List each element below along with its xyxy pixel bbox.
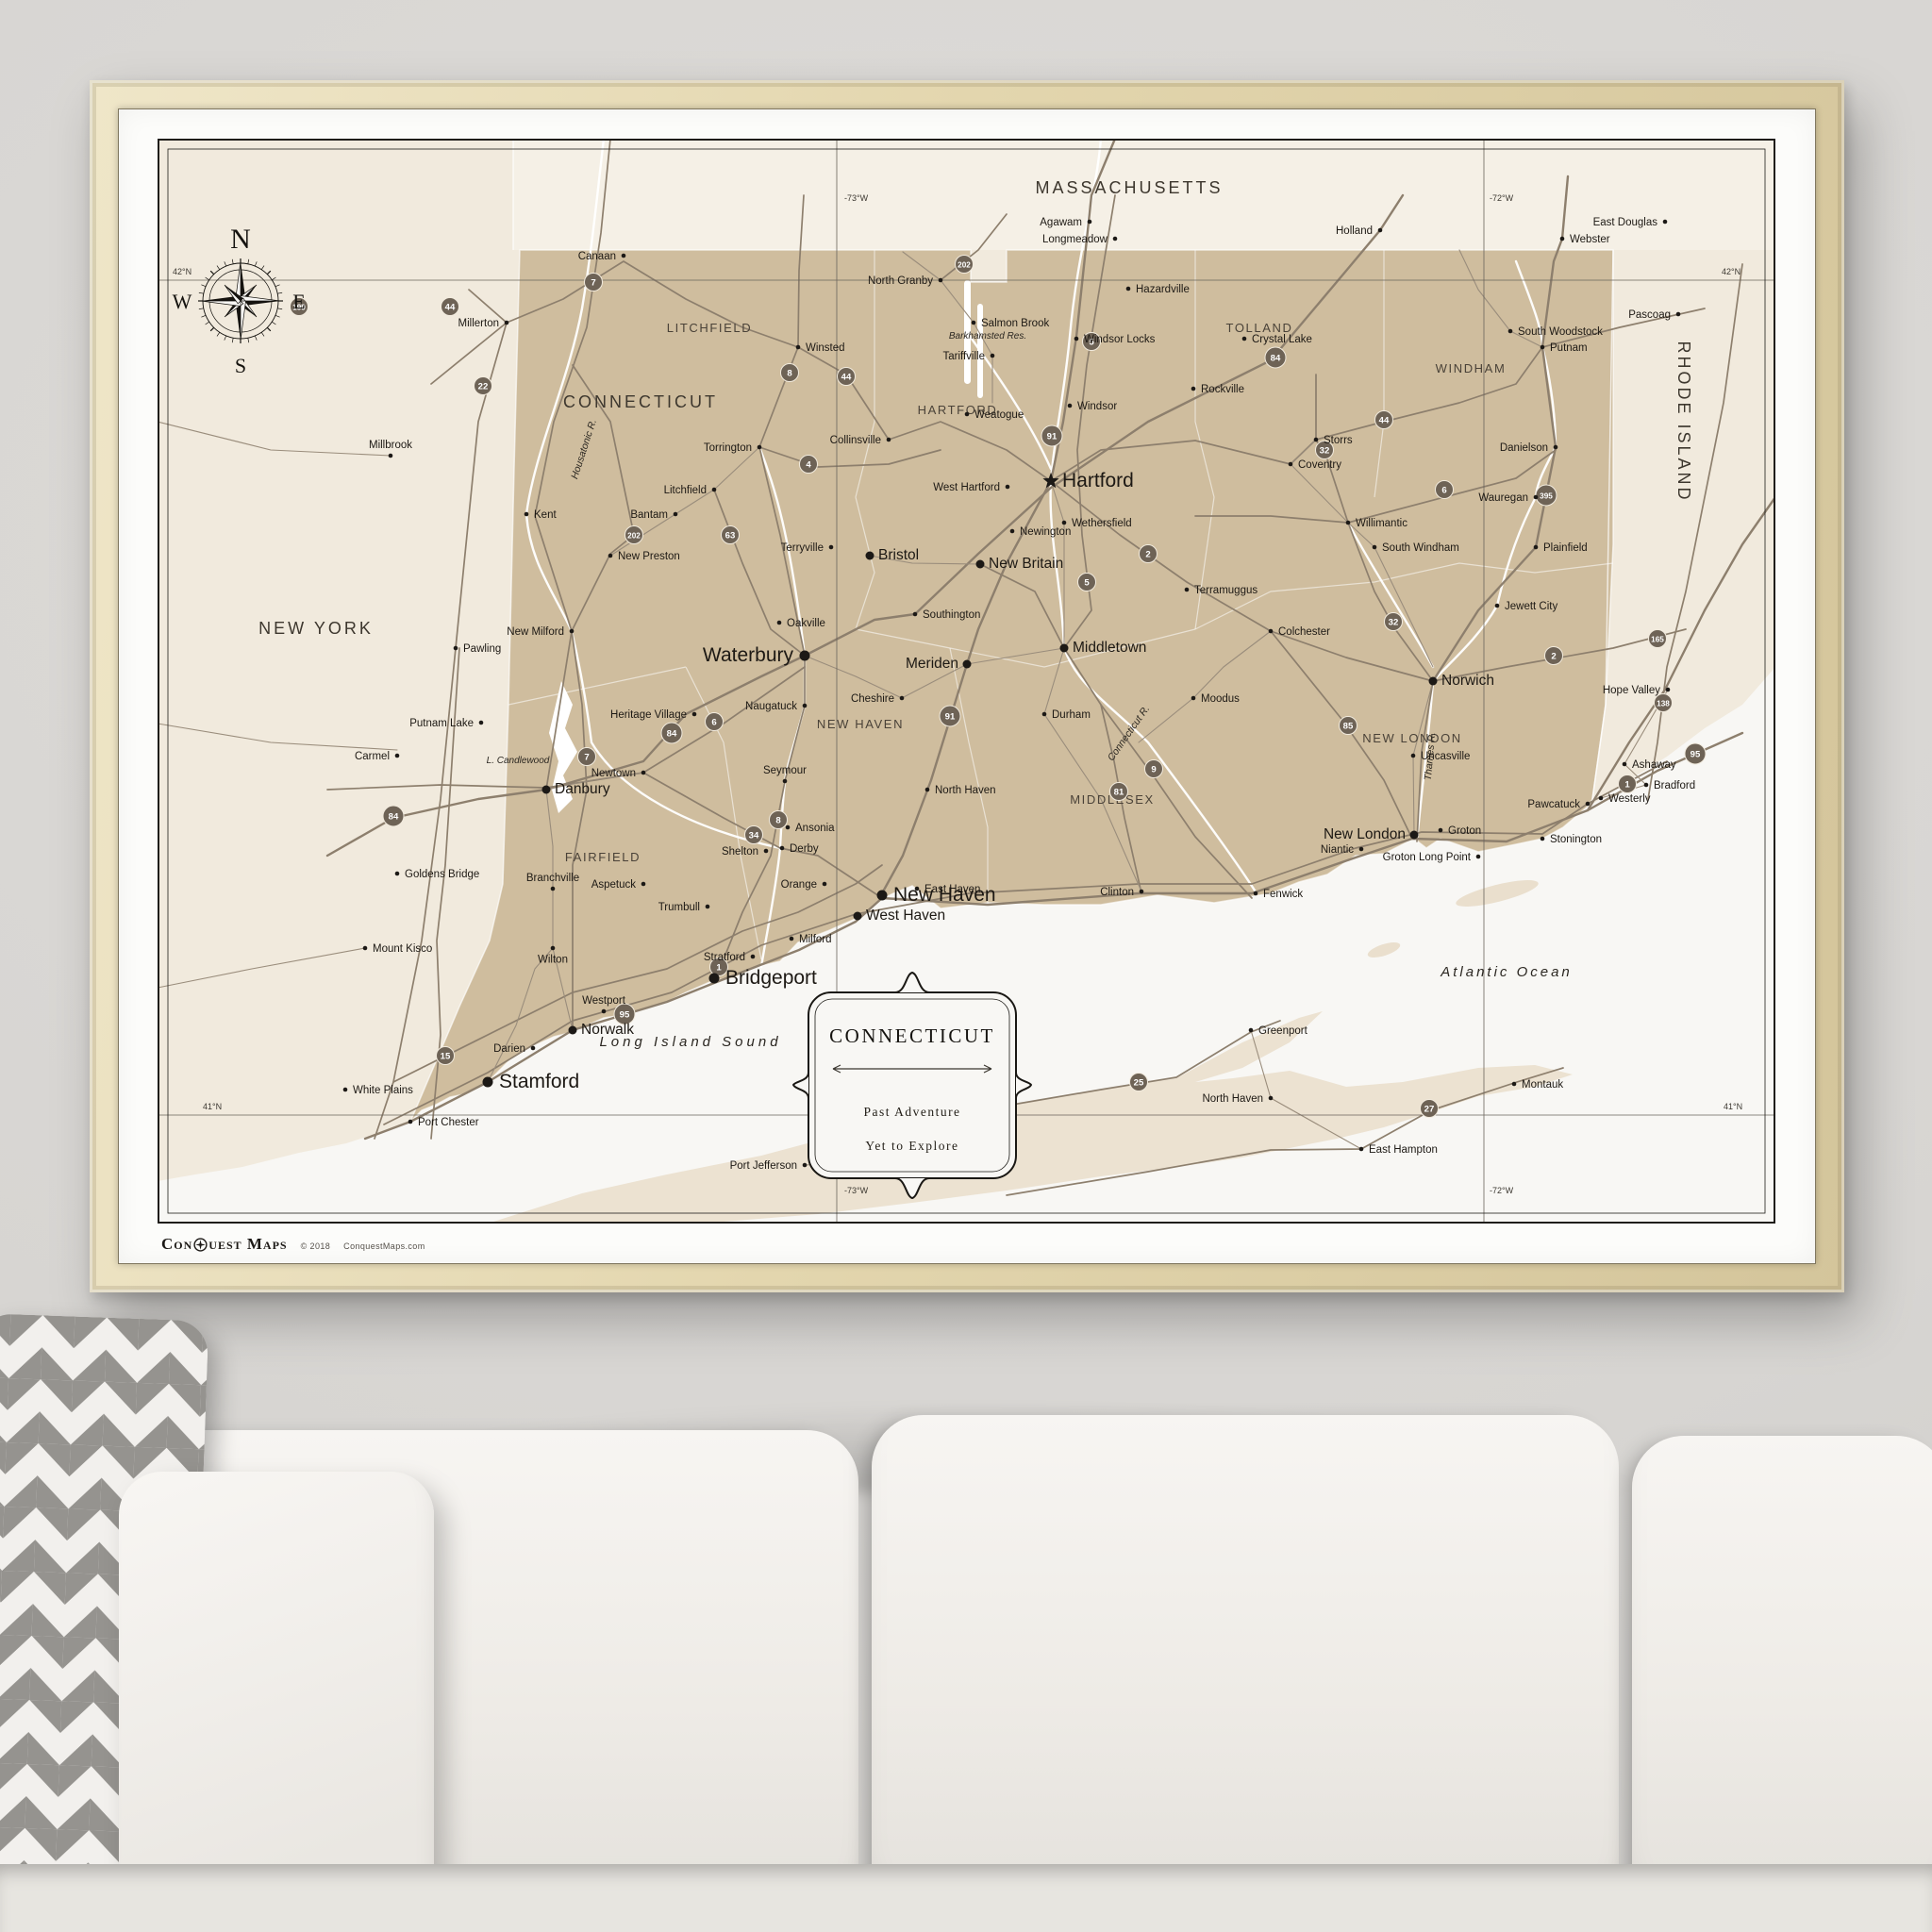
place-label: Holland bbox=[1336, 225, 1373, 237]
living-room-scene: 42°N 42°N 41°N 41°N -73°W -73°W -72°W -7… bbox=[0, 0, 1932, 1932]
place-dot bbox=[1560, 237, 1565, 241]
place-dot bbox=[531, 1046, 536, 1051]
place-dot bbox=[1378, 228, 1383, 233]
place-label: Pawcatuck bbox=[1527, 799, 1580, 810]
place-label: Stamford bbox=[499, 1071, 579, 1092]
route-shield-number: 81 bbox=[1114, 787, 1124, 797]
state-label: RHODE ISLAND bbox=[1674, 341, 1693, 502]
place-label: Putnam Lake bbox=[409, 718, 474, 729]
route-shield: 2 bbox=[1140, 545, 1158, 563]
place-dot bbox=[1191, 696, 1196, 701]
place-dot bbox=[1512, 1082, 1517, 1087]
place-dot bbox=[569, 1026, 577, 1035]
place-label: Windsor bbox=[1077, 401, 1117, 412]
place: West Haven bbox=[854, 908, 946, 924]
compass-letter-north: N bbox=[230, 224, 251, 255]
lat-label-bottom-left: 41°N bbox=[203, 1102, 222, 1111]
place-label: Heritage Village bbox=[610, 709, 687, 721]
route-shield: 91 bbox=[1041, 425, 1062, 446]
place-dot bbox=[1042, 712, 1047, 717]
place-label: West Haven bbox=[866, 908, 945, 924]
place: East Douglas bbox=[1593, 217, 1668, 228]
map-canvas: 42°N 42°N 41°N 41°N -73°W -73°W -72°W -7… bbox=[118, 108, 1816, 1264]
route-shield-number: 5 bbox=[1084, 577, 1090, 588]
place: New Preston bbox=[608, 551, 680, 562]
place-label: Norwich bbox=[1441, 673, 1494, 689]
place-dot bbox=[1541, 345, 1545, 350]
water-label: L. Candlewood bbox=[487, 756, 550, 766]
county-label: FAIRFIELD bbox=[565, 850, 641, 864]
place-dot bbox=[641, 771, 646, 775]
framed-map-frame: 42°N 42°N 41°N 41°N -73°W -73°W -72°W -7… bbox=[90, 80, 1844, 1292]
place-dot bbox=[777, 621, 782, 625]
route-shield: 138 bbox=[1655, 694, 1673, 712]
place-label: Bridgeport bbox=[725, 967, 817, 989]
place-dot bbox=[570, 629, 575, 634]
route-shield-number: 32 bbox=[1389, 617, 1399, 627]
place-dot bbox=[674, 512, 678, 517]
place-label: Carmel bbox=[355, 751, 390, 762]
route-shield-number: 202 bbox=[627, 531, 641, 540]
place-dot bbox=[363, 946, 368, 951]
legend-title: CONNECTICUT bbox=[829, 1024, 995, 1047]
route-shield-number: 2 bbox=[1145, 549, 1150, 559]
place-label: West Hartford bbox=[933, 482, 1000, 493]
place-dot bbox=[1666, 688, 1671, 692]
place: South Woodstock bbox=[1508, 326, 1603, 338]
place-dot bbox=[712, 488, 717, 492]
place-label: Westerly bbox=[1608, 793, 1651, 805]
place-dot bbox=[758, 445, 762, 450]
place-dot bbox=[389, 454, 393, 458]
place-dot bbox=[1242, 337, 1247, 341]
place-label: Terryville bbox=[781, 542, 824, 554]
place-label: Uncasville bbox=[1421, 751, 1470, 762]
place-label: Hazardville bbox=[1136, 284, 1190, 295]
place-label: East Haven bbox=[924, 884, 980, 895]
place-dot bbox=[1586, 802, 1591, 807]
place-dot bbox=[823, 882, 827, 887]
place-dot bbox=[1068, 404, 1073, 408]
place-label: Pawling bbox=[463, 643, 501, 655]
place-dot bbox=[764, 849, 769, 854]
place-label: Putnam bbox=[1550, 342, 1588, 354]
route-shield: 91 bbox=[940, 706, 960, 726]
place-label: Wethersfield bbox=[1072, 518, 1132, 529]
place-dot bbox=[1439, 828, 1443, 833]
route-shield-number: 95 bbox=[1690, 749, 1701, 759]
place-dot bbox=[1508, 329, 1513, 334]
route-shield-number: 395 bbox=[1540, 491, 1553, 500]
place-label: New Preston bbox=[618, 551, 680, 562]
state-label: CONNECTICUT bbox=[563, 392, 718, 411]
place: Groton Long Point bbox=[1383, 852, 1481, 863]
place-label: Weatogue bbox=[974, 409, 1024, 421]
route-shield: 27 bbox=[1421, 1100, 1439, 1118]
place-label: Shelton bbox=[722, 846, 758, 858]
compass-letter-south: S bbox=[235, 354, 246, 377]
place: Salmon Brook bbox=[972, 318, 1050, 329]
website-text: ConquestMaps.com bbox=[343, 1241, 425, 1251]
route-shield: 32 bbox=[1385, 613, 1403, 631]
route-shield-number: 1 bbox=[716, 962, 722, 973]
place: South Windham bbox=[1373, 542, 1459, 554]
place-dot bbox=[786, 825, 791, 830]
place-dot bbox=[991, 354, 995, 358]
route-shield: 22 bbox=[475, 377, 492, 395]
place-dot bbox=[1534, 545, 1539, 550]
place: Greenport bbox=[1249, 1025, 1308, 1037]
place-label: Meriden bbox=[906, 656, 958, 672]
route-shield: 15 bbox=[437, 1047, 455, 1065]
route-shield: 84 bbox=[383, 806, 404, 826]
place-label: East Douglas bbox=[1593, 217, 1658, 228]
place-dot bbox=[1113, 237, 1118, 241]
couch-seat bbox=[0, 1864, 1932, 1932]
route-shield-number: 8 bbox=[775, 815, 781, 825]
route-shield-number: 95 bbox=[620, 1009, 630, 1020]
place: New London bbox=[1324, 826, 1419, 842]
place-label: Torrington bbox=[704, 442, 752, 454]
place-dot bbox=[854, 912, 862, 921]
place-label: Jewett City bbox=[1505, 601, 1557, 612]
place: North Haven bbox=[925, 785, 996, 796]
place-dot bbox=[551, 946, 556, 951]
place-dot bbox=[1269, 629, 1274, 634]
place-dot bbox=[1476, 855, 1481, 859]
place-label: Greenport bbox=[1258, 1025, 1308, 1037]
place-label: Middletown bbox=[1073, 640, 1146, 656]
place-dot bbox=[1126, 287, 1131, 291]
place-dot bbox=[1534, 495, 1539, 500]
legend-adventure-label: Past Adventure bbox=[863, 1105, 960, 1119]
route-shield: 8 bbox=[781, 364, 799, 382]
county-label: LITCHFIELD bbox=[667, 321, 752, 335]
place-label: Naugatuck bbox=[745, 701, 797, 712]
compass-letter-east: E bbox=[292, 290, 305, 313]
place-label: Branchville bbox=[526, 873, 579, 884]
route-shield-number: 84 bbox=[1271, 353, 1281, 363]
place-label: Canaan bbox=[578, 251, 616, 262]
place-label: Millerton bbox=[458, 318, 499, 329]
route-shield: 1 bbox=[1619, 775, 1637, 793]
place-dot bbox=[939, 278, 943, 283]
attribution: Con uest Maps © 2018 ConquestMaps.com bbox=[161, 1235, 425, 1254]
place-label: Millbrook bbox=[369, 440, 412, 451]
place-label: New Britain bbox=[989, 556, 1063, 572]
place-label: Ansonia bbox=[795, 823, 835, 834]
place-label: Groton Long Point bbox=[1383, 852, 1472, 863]
place-dot bbox=[1663, 220, 1668, 225]
place-dot bbox=[692, 712, 697, 717]
route-shield-number: 7 bbox=[591, 277, 595, 288]
place-label: Longmeadow bbox=[1042, 234, 1108, 245]
couch-back-cushion-center bbox=[872, 1415, 1619, 1932]
legend-explore-label: Yet to Explore bbox=[865, 1139, 958, 1153]
place: Port Jefferson bbox=[730, 1160, 808, 1172]
place-dot bbox=[1373, 545, 1377, 550]
place-dot bbox=[1010, 529, 1015, 534]
route-shield-number: 84 bbox=[667, 728, 677, 739]
place-dot bbox=[1074, 337, 1079, 341]
place-label: Oakville bbox=[787, 618, 825, 629]
place-dot bbox=[925, 788, 930, 792]
place-dot bbox=[1062, 521, 1067, 525]
place-dot bbox=[1623, 762, 1627, 767]
place-dot bbox=[796, 345, 801, 350]
place-label: Plainfield bbox=[1543, 542, 1588, 554]
compass-logo-icon bbox=[193, 1238, 208, 1252]
route-shield: 63 bbox=[722, 526, 740, 544]
route-shield: 165 bbox=[1649, 630, 1667, 648]
county-label: NEW HAVEN bbox=[817, 717, 904, 731]
place-dot bbox=[641, 882, 646, 887]
route-shield: 25 bbox=[1130, 1074, 1148, 1091]
place-dot bbox=[790, 937, 794, 941]
place-dot bbox=[1410, 831, 1419, 840]
place-dot bbox=[1249, 1028, 1254, 1033]
state-label: NEW YORK bbox=[258, 619, 374, 638]
route-shield: 395 bbox=[1536, 485, 1557, 506]
route-shield-number: 85 bbox=[1343, 721, 1354, 731]
route-shield: 5 bbox=[1078, 574, 1096, 591]
place-dot bbox=[866, 552, 874, 560]
route-shield-number: 6 bbox=[711, 717, 716, 727]
route-shield-number: 15 bbox=[441, 1051, 451, 1061]
place-label: Port Chester bbox=[418, 1117, 479, 1128]
route-shield: 44 bbox=[441, 298, 459, 316]
place-dot bbox=[1359, 1147, 1364, 1152]
compass-letter-west: W bbox=[173, 290, 192, 313]
place: Windsor Locks bbox=[1074, 334, 1156, 345]
place-label: Fenwick bbox=[1263, 889, 1303, 900]
place-label: Agawam bbox=[1040, 217, 1082, 228]
couch-back-cushion-right bbox=[1632, 1436, 1932, 1932]
place-dot bbox=[1554, 445, 1558, 450]
place-label: Mount Kisco bbox=[373, 943, 432, 955]
place-label: Coventry bbox=[1298, 459, 1341, 471]
place-dot bbox=[829, 545, 834, 550]
legend-box: CONNECTICUT Past Adventure Yet to Explor… bbox=[793, 973, 1031, 1198]
place-label: North Haven bbox=[935, 785, 996, 796]
place-dot bbox=[608, 554, 613, 558]
place: East Haven bbox=[915, 884, 981, 895]
county-label: WINDHAM bbox=[1436, 361, 1507, 375]
lon-label-left-top: -73°W bbox=[844, 193, 869, 203]
route-shield-number: 44 bbox=[1379, 415, 1390, 425]
place-label: Norwalk bbox=[581, 1022, 634, 1038]
place-label: Aspetuck bbox=[591, 879, 637, 891]
place-label: Terramuggus bbox=[1194, 585, 1257, 596]
place: White Plains bbox=[343, 1085, 413, 1096]
place-dot bbox=[900, 696, 905, 701]
place-dot bbox=[915, 887, 920, 891]
place-label: White Plains bbox=[353, 1085, 413, 1096]
place-label: Tariffville bbox=[942, 351, 985, 362]
place-label: South Windham bbox=[1382, 542, 1459, 554]
place-dot bbox=[709, 974, 720, 984]
place-dot bbox=[1599, 796, 1604, 801]
place-dot bbox=[1185, 588, 1190, 592]
place-label: Hartford bbox=[1062, 470, 1134, 491]
place-dot bbox=[803, 704, 808, 708]
place-label: Bristol bbox=[878, 547, 919, 563]
place-dot bbox=[343, 1088, 348, 1092]
county-label: NEW LONDON bbox=[1362, 731, 1462, 745]
route-shield: 85 bbox=[1340, 717, 1357, 735]
place: Mount Kisco bbox=[363, 943, 433, 955]
place-dot bbox=[483, 1077, 493, 1088]
place-label: Windsor Locks bbox=[1084, 334, 1156, 345]
white-throw-pillow bbox=[119, 1472, 434, 1932]
place-label: Southington bbox=[923, 609, 980, 621]
place-label: East Hampton bbox=[1369, 1144, 1438, 1156]
place-dot bbox=[706, 905, 710, 909]
place-label: Wilton bbox=[538, 955, 568, 966]
place-label: Litchfield bbox=[664, 485, 707, 496]
copyright-text: © 2018 bbox=[301, 1241, 331, 1251]
place: East Hampton bbox=[1359, 1144, 1438, 1156]
route-shield-number: 34 bbox=[749, 830, 759, 841]
place-label: Darien bbox=[493, 1043, 525, 1055]
route-shield-number: 44 bbox=[445, 302, 456, 312]
route-shield: 4 bbox=[800, 456, 818, 474]
brand-logo: Con uest Maps bbox=[161, 1235, 288, 1254]
route-shield-number: 4 bbox=[806, 459, 811, 470]
place: Uncasville bbox=[1411, 751, 1471, 762]
route-shield: 6 bbox=[1436, 481, 1454, 499]
place-label: Montauk bbox=[1522, 1079, 1563, 1091]
place-label: Bradford bbox=[1654, 780, 1695, 791]
place-label: North Granby bbox=[868, 275, 933, 287]
place: North Haven bbox=[1202, 1093, 1273, 1105]
place-dot bbox=[1644, 783, 1649, 788]
place: Willimantic bbox=[1346, 518, 1407, 529]
lat-label-bottom-right: 41°N bbox=[1724, 1102, 1742, 1111]
place: West Hartford bbox=[933, 482, 1009, 493]
place: New Britain bbox=[976, 556, 1064, 572]
place-label: Webster bbox=[1570, 234, 1610, 245]
route-shield-number: 165 bbox=[1651, 635, 1664, 643]
route-shield: 9 bbox=[1145, 760, 1163, 778]
water-label: Atlantic Ocean bbox=[1440, 964, 1573, 980]
brand-suffix: uest Maps bbox=[208, 1235, 287, 1254]
place-dot bbox=[1359, 847, 1364, 852]
route-shield: 2 bbox=[1545, 647, 1563, 665]
place: Port Chester bbox=[408, 1117, 479, 1128]
place-label: Westport bbox=[582, 995, 626, 1007]
route-shield: 6 bbox=[706, 713, 724, 731]
route-shield-number: 2 bbox=[1551, 651, 1556, 661]
place-label: Winsted bbox=[806, 342, 845, 354]
place-dot bbox=[1140, 890, 1144, 894]
place-label: New London bbox=[1324, 826, 1406, 842]
place-label: Newington bbox=[1020, 526, 1071, 538]
lat-label-top-left: 42°N bbox=[173, 267, 192, 276]
lon-label-right-top: -72°W bbox=[1490, 193, 1514, 203]
place-dot bbox=[551, 887, 556, 891]
lon-label-right-bottom: -72°W bbox=[1490, 1186, 1514, 1195]
place-dot bbox=[395, 872, 400, 876]
place-label: Waterbury bbox=[703, 644, 794, 666]
place-dot bbox=[479, 721, 484, 725]
place-label: Stratford bbox=[704, 952, 745, 963]
place-label: Danbury bbox=[555, 781, 610, 797]
place-label: Kent bbox=[534, 509, 557, 521]
place-label: South Woodstock bbox=[1518, 326, 1603, 338]
place-dot bbox=[408, 1120, 413, 1124]
place-label: Danielson bbox=[1500, 442, 1548, 454]
route-shield: 34 bbox=[745, 826, 763, 844]
place-label: Willimantic bbox=[1356, 518, 1407, 529]
place-label: North Haven bbox=[1202, 1093, 1263, 1105]
route-shield: 84 bbox=[661, 723, 682, 743]
water-label: Barkhamsted Res. bbox=[949, 331, 1026, 341]
place-label: New Milford bbox=[507, 626, 564, 638]
place: Terramuggus bbox=[1185, 585, 1258, 596]
place: Wethersfield bbox=[1062, 518, 1132, 529]
place-dot bbox=[887, 438, 891, 442]
place-label: Moodus bbox=[1201, 693, 1240, 705]
route-shield-number: 25 bbox=[1134, 1077, 1144, 1088]
place-label: Milford bbox=[799, 934, 832, 945]
place-label: Ashaway bbox=[1632, 759, 1676, 771]
place-dot bbox=[1495, 604, 1500, 608]
place-label: Hope Valley bbox=[1603, 685, 1660, 696]
state-label: MASSACHUSETTS bbox=[1035, 178, 1223, 197]
place-dot bbox=[1346, 521, 1351, 525]
place-label: Storrs bbox=[1324, 435, 1353, 446]
place-dot bbox=[1411, 754, 1416, 758]
place-dot bbox=[1060, 644, 1069, 653]
place: Hazardville bbox=[1126, 284, 1190, 295]
route-shield-number: 6 bbox=[1441, 485, 1446, 495]
place-label: Derby bbox=[790, 843, 819, 855]
place-dot bbox=[1088, 220, 1092, 225]
route-shield: 44 bbox=[838, 368, 856, 386]
place: North Granby bbox=[868, 275, 942, 287]
place-label: Trumbull bbox=[658, 902, 700, 913]
county-label: TOLLAND bbox=[1226, 321, 1293, 335]
connecticut-map: 42°N 42°N 41°N 41°N -73°W -73°W -72°W -7… bbox=[158, 139, 1775, 1224]
brand-prefix: Con bbox=[161, 1235, 192, 1254]
route-shield: 202 bbox=[956, 256, 974, 274]
place: Newington bbox=[1010, 526, 1072, 538]
route-shield-number: 44 bbox=[841, 372, 852, 382]
route-shield-number: 22 bbox=[478, 381, 489, 391]
place-dot bbox=[976, 560, 985, 569]
place: New Milford bbox=[507, 626, 574, 638]
place: Heritage Village bbox=[610, 709, 696, 721]
place-label: Stonington bbox=[1550, 834, 1602, 845]
place: Jewett City bbox=[1495, 601, 1558, 612]
route-shield-number: 91 bbox=[945, 711, 956, 722]
route-shield: 7 bbox=[578, 748, 596, 766]
place-label: Niantic bbox=[1321, 844, 1354, 856]
place-label: Collinsville bbox=[830, 435, 881, 446]
route-shield-number: 32 bbox=[1320, 445, 1330, 456]
place: Crystal Lake bbox=[1242, 334, 1312, 345]
route-shield: 7 bbox=[585, 274, 603, 291]
route-shield-number: 9 bbox=[1151, 764, 1156, 774]
place: Bridgeport bbox=[709, 967, 818, 989]
route-shield-number: 84 bbox=[389, 811, 399, 822]
place-label: Rockville bbox=[1201, 384, 1244, 395]
place-dot bbox=[803, 1163, 808, 1168]
place-label: Wauregan bbox=[1478, 492, 1528, 504]
route-shield-number: 202 bbox=[958, 260, 971, 269]
place-label: Port Jefferson bbox=[730, 1160, 797, 1172]
